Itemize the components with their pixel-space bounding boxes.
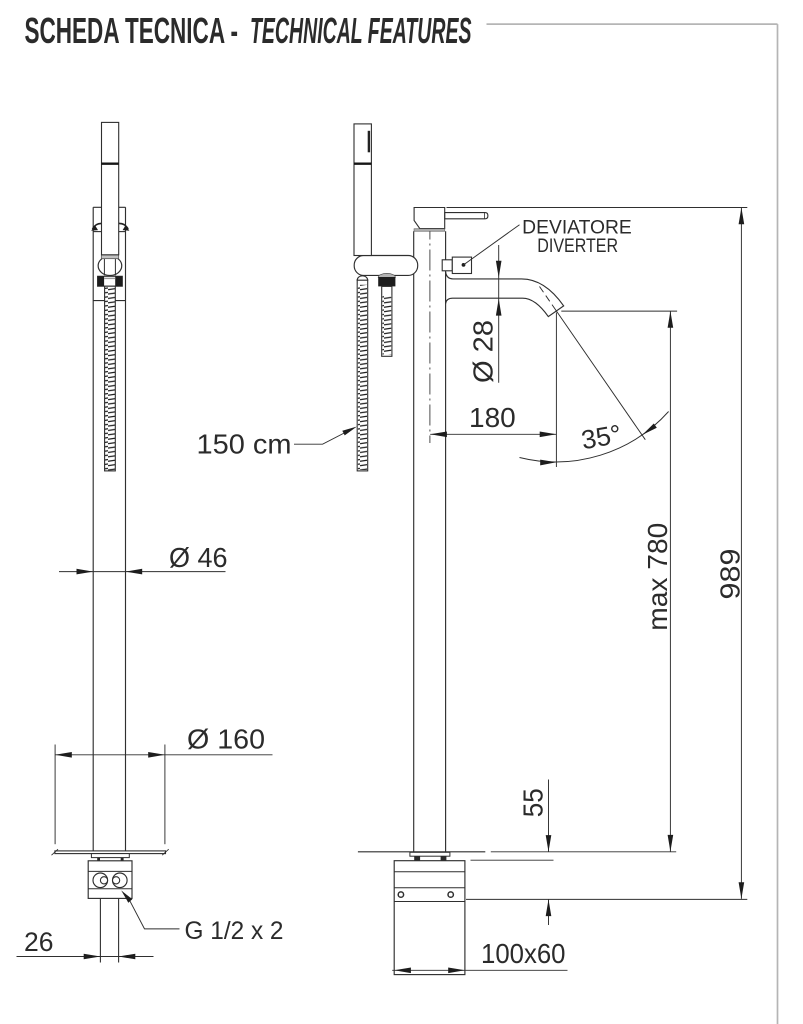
svg-text:Ø 28: Ø 28 xyxy=(468,320,499,383)
svg-text:TECHNICAL FEATURES: TECHNICAL FEATURES xyxy=(250,10,472,51)
svg-text:G 1/2 x 2: G 1/2 x 2 xyxy=(185,917,284,945)
svg-text:SCHEDA TECNICA -: SCHEDA TECNICA - xyxy=(25,10,239,51)
svg-text:DIVERTER: DIVERTER xyxy=(537,236,618,257)
svg-text:55: 55 xyxy=(518,788,549,817)
svg-text:Ø 46: Ø 46 xyxy=(169,542,228,573)
svg-text:26: 26 xyxy=(24,927,53,957)
svg-text:150 cm: 150 cm xyxy=(197,429,292,460)
svg-text:989: 989 xyxy=(715,549,746,600)
svg-text:max 780: max 780 xyxy=(642,523,673,631)
svg-text:180: 180 xyxy=(469,402,516,433)
svg-text:100x60: 100x60 xyxy=(481,938,566,969)
svg-text:Ø 160: Ø 160 xyxy=(187,724,265,755)
